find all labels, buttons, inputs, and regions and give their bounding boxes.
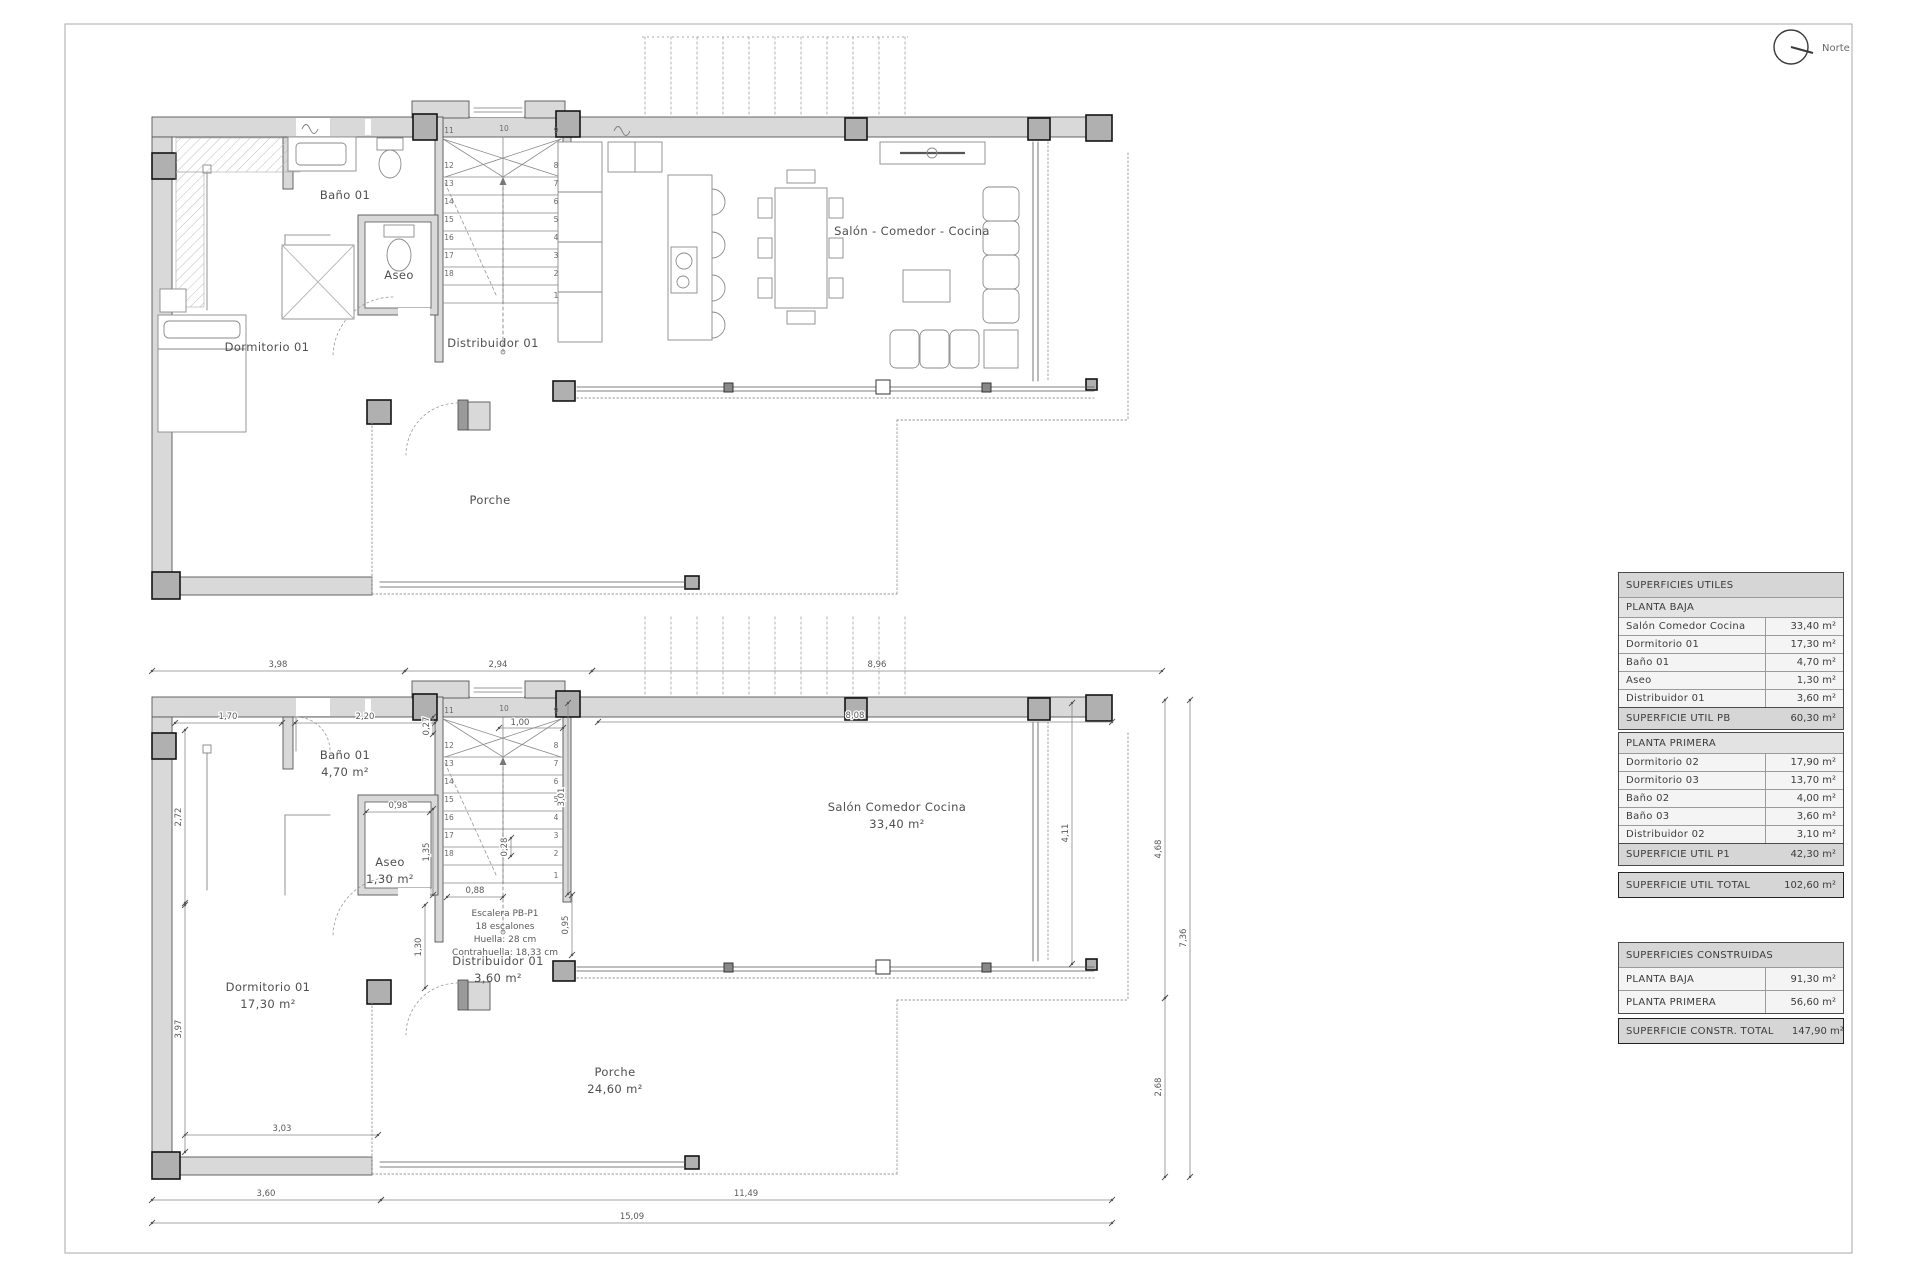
toilet-bowl xyxy=(387,239,411,271)
stair-step-number: 6 xyxy=(554,197,559,206)
sofa xyxy=(983,289,1019,323)
floor-plan-lower: 3,982,948,963,6011,4915,091,702,208,081,… xyxy=(149,660,1193,1226)
dimension-value: 3,03 xyxy=(273,1124,292,1134)
chair xyxy=(787,311,815,324)
table-row-value: 3,10 m² xyxy=(1765,826,1843,843)
stair-step-number: 5 xyxy=(554,215,559,224)
room-label-salon: Salón Comedor Cocina xyxy=(828,800,967,814)
stair-step-number: 9 xyxy=(554,706,559,715)
stair-step-number: 5 xyxy=(554,795,559,804)
table-row: Distribuidor 023,10 m² xyxy=(1619,825,1843,843)
stair-step-number: 12 xyxy=(444,741,454,750)
table-row: Baño 024,00 m² xyxy=(1619,789,1843,807)
table-row-label: Dormitorio 01 xyxy=(1619,639,1765,650)
dimension-lines: 3,982,948,963,6011,4915,091,702,208,081,… xyxy=(149,660,1193,1226)
room-label-salon: Salón - Comedor - Cocina xyxy=(834,224,990,238)
dimension-value: 3,01 xyxy=(557,788,567,807)
stair-step-number: 11 xyxy=(444,126,454,135)
table-row-label: Baño 01 xyxy=(1619,657,1765,668)
stair-step-number: 4 xyxy=(554,233,559,242)
dimension: 15,09 xyxy=(149,1212,1115,1226)
table-row-value: 17,30 m² xyxy=(1765,636,1843,653)
sofa xyxy=(890,330,919,368)
planta-primera-table: PLANTA PRIMERADormitorio 0217,90 m²Dormi… xyxy=(1618,732,1844,866)
dimension-value: 4,68 xyxy=(1154,840,1164,859)
table-row-label: PLANTA PRIMERA xyxy=(1619,997,1765,1008)
stair-step-number: 14 xyxy=(444,777,454,786)
dimension-value: 15,09 xyxy=(620,1212,644,1222)
dimension-value: 2,68 xyxy=(1154,1078,1164,1097)
table-row-label: Distribuidor 01 xyxy=(1619,693,1765,704)
stair-step-number: 1 xyxy=(554,291,559,300)
table-row-value: 3,60 m² xyxy=(1765,690,1843,707)
dimension-value: 0,88 xyxy=(466,886,485,896)
room-label-dormitorio: Dormitorio 01 xyxy=(226,980,311,994)
dimension-value: 1,35 xyxy=(422,843,432,862)
table-row-label: Baño 03 xyxy=(1619,811,1765,822)
table-row: PLANTA PRIMERA56,60 m² xyxy=(1619,990,1843,1013)
dining-table xyxy=(775,188,827,308)
stair-step-number: 4 xyxy=(554,813,559,822)
grand-total-label: SUPERFICIE ÚTIL TOTAL xyxy=(1619,880,1766,891)
dimension: 3,60 xyxy=(149,1189,384,1203)
section-header-label: PLANTA PRIMERA xyxy=(1619,738,1843,749)
stair-step-number: 16 xyxy=(444,813,454,822)
stair-step-number: 16 xyxy=(444,233,454,242)
stair-step-number: 10 xyxy=(499,704,509,713)
room-label-bano: Baño 01 xyxy=(320,188,370,202)
stair-step-number: 15 xyxy=(444,215,454,224)
nightstand xyxy=(160,289,186,312)
toilet xyxy=(384,225,414,237)
table-title: SUPERFICIES CONSTRUIDAS xyxy=(1619,943,1843,967)
chair xyxy=(758,198,772,218)
sofa xyxy=(983,255,1019,289)
dimension: 7,36 xyxy=(1179,697,1193,1180)
dimension: 2,68 xyxy=(1154,995,1168,1180)
room-label-dormitorio: Dormitorio 01 xyxy=(225,340,310,354)
dimension-value: 0,27 xyxy=(422,717,432,736)
chair xyxy=(829,198,843,218)
table-row: Dormitorio 0217,90 m² xyxy=(1619,753,1843,771)
dimension: 2,94 xyxy=(402,660,595,674)
stair-step-number: 1 xyxy=(554,871,559,880)
table-row: Distribuidor 013,60 m² xyxy=(1619,689,1843,707)
section-header: PLANTA BAJA xyxy=(1619,597,1843,617)
table-row-value: 13,70 m² xyxy=(1765,772,1843,789)
room-label-bano: Baño 01 xyxy=(320,748,370,762)
table-row-label: Aseo xyxy=(1619,675,1765,686)
stair-step-number: 13 xyxy=(444,759,454,768)
stair-step-number: 17 xyxy=(444,831,454,840)
table-row-value: 17,90 m² xyxy=(1765,754,1843,771)
table-row-value: 4,70 m² xyxy=(1765,654,1843,671)
table-row-value: 33,40 m² xyxy=(1765,618,1843,635)
stair-step-number: 15 xyxy=(444,795,454,804)
room-label-dormitorio-area: 17,30 m² xyxy=(240,997,296,1011)
dimension-value: 3,60 xyxy=(257,1189,276,1199)
dimension-value: 0,28 xyxy=(500,838,510,857)
chair xyxy=(787,170,815,183)
table-row-label: Baño 02 xyxy=(1619,793,1765,804)
dimension-value: 2,20 xyxy=(356,712,375,722)
table-row-label: PLANTA BAJA xyxy=(1619,974,1765,985)
stool xyxy=(712,189,725,215)
constr-total: SUPERFICIE CONSTR. TOTAL147,90 m² xyxy=(1619,1020,1851,1042)
dimension: 4,11 xyxy=(1061,700,1075,967)
table-row: Dormitorio 0117,30 m² xyxy=(1619,635,1843,653)
dimension: 11,49 xyxy=(378,1189,1115,1203)
dimension-value: 1,00 xyxy=(511,718,530,728)
stool xyxy=(712,232,725,258)
toilet-bowl xyxy=(379,150,401,178)
stair-step-number: 12 xyxy=(444,161,454,170)
section-header-label: PLANTA BAJA xyxy=(1619,602,1843,613)
stool xyxy=(712,312,725,338)
dimension-value: 8,96 xyxy=(868,660,887,670)
chair xyxy=(829,238,843,258)
lower-plan-labels: 123456789101112131415161718Baño 014,70 m… xyxy=(226,704,967,1096)
stair-step-number: 3 xyxy=(554,251,559,260)
stair-step-number: 8 xyxy=(554,161,559,170)
grand-total: SUPERFICIE ÚTIL TOTAL102,60 m² xyxy=(1619,874,1843,896)
stair-step-number: 8 xyxy=(554,741,559,750)
stair-step-number: 11 xyxy=(444,706,454,715)
table-row-label: Salón Comedor Cocina xyxy=(1619,621,1765,632)
table-row-label: Dormitorio 02 xyxy=(1619,757,1765,768)
dimension: 3,03 xyxy=(182,1124,381,1138)
stair-step-number: 7 xyxy=(554,759,559,768)
north-label: Norte xyxy=(1822,43,1850,54)
superficies-construidas-table: SUPERFICIES CONSTRUIDASPLANTA BAJA91,30 … xyxy=(1618,942,1844,1014)
dimension-value: 3,97 xyxy=(174,1020,184,1039)
dimension-value: 2,94 xyxy=(489,660,508,670)
floor-plan-upper: 123456789101112131415161718Baño 01AseoDo… xyxy=(158,37,1019,507)
room-label-aseo-area: 1,30 m² xyxy=(366,872,414,886)
table-row-label: Dormitorio 03 xyxy=(1619,775,1765,786)
superficie-constr-total: SUPERFICIE CONSTR. TOTAL147,90 m² xyxy=(1618,1018,1844,1044)
side-table xyxy=(984,330,1018,368)
stair-step-number: 2 xyxy=(554,269,559,278)
dimension-value: 4,11 xyxy=(1061,824,1071,843)
section-header: PLANTA PRIMERA xyxy=(1619,733,1843,753)
table-row-value: 4,00 m² xyxy=(1765,790,1843,807)
section-total-label: SUPERFICIE ÚTIL P1 xyxy=(1619,849,1766,860)
table-title-label: SUPERFICIES ÚTILES xyxy=(1619,580,1843,591)
section-total: SUPERFICIE ÚTIL P142,30 m² xyxy=(1619,843,1843,865)
stair-step-number: 9 xyxy=(554,126,559,135)
dimension: 0,27 xyxy=(422,714,436,737)
table-row-value: 3,60 m² xyxy=(1765,808,1843,825)
stair-step-number: 13 xyxy=(444,179,454,188)
stair-step-number: 14 xyxy=(444,197,454,206)
table-row: Baño 033,60 m² xyxy=(1619,807,1843,825)
table-row: Baño 014,70 m² xyxy=(1619,653,1843,671)
room-label-porche-area: 24,60 m² xyxy=(587,1082,643,1096)
room-label-distribuidor-area: 3,60 m² xyxy=(474,971,522,985)
dimension: 3,98 xyxy=(149,660,408,674)
chair xyxy=(829,278,843,298)
superficies-utiles-table: SUPERFICIES ÚTILESPLANTA BAJASalón Comed… xyxy=(1618,572,1844,730)
room-label-porche: Porche xyxy=(469,493,510,507)
section-total-value: 42,30 m² xyxy=(1766,844,1843,865)
table-title-label: SUPERFICIES CONSTRUIDAS xyxy=(1619,950,1843,961)
stair-step-number: 17 xyxy=(444,251,454,260)
chair xyxy=(758,278,772,298)
stair-step-number: 3 xyxy=(554,831,559,840)
table-title: SUPERFICIES ÚTILES xyxy=(1619,573,1843,597)
table-row-value: 91,30 m² xyxy=(1765,968,1843,990)
dimension: 4,68 xyxy=(1154,697,1168,1001)
section-total-value: 60,30 m² xyxy=(1766,708,1843,729)
sofa xyxy=(983,187,1019,221)
north-compass: Norte xyxy=(1774,30,1850,64)
room-label-aseo: Aseo xyxy=(384,268,414,282)
coffee-table xyxy=(903,270,950,302)
room-label-distribuidor: Distribuidor 01 xyxy=(447,336,539,350)
table-row-value: 1,30 m² xyxy=(1765,672,1843,689)
sofa xyxy=(950,330,979,368)
constr-total-label: SUPERFICIE CONSTR. TOTAL xyxy=(1619,1026,1774,1037)
constr-total-value: 147,90 m² xyxy=(1774,1020,1851,1042)
stair-note-line: Escalera PB-P1 xyxy=(472,909,539,919)
table-row: Dormitorio 0313,70 m² xyxy=(1619,771,1843,789)
sofa xyxy=(920,330,949,368)
room-label-bano-area: 4,70 m² xyxy=(321,765,369,779)
dimension-value: 8,08 xyxy=(846,711,865,721)
table-row: Salón Comedor Cocina33,40 m² xyxy=(1619,617,1843,635)
wardrobe-hatch xyxy=(176,138,300,307)
table-row-label: Distribuidor 02 xyxy=(1619,829,1765,840)
table-row: PLANTA BAJA91,30 m² xyxy=(1619,967,1843,990)
chair xyxy=(758,238,772,258)
stair-step-number: 6 xyxy=(554,777,559,786)
superficie-util-total: SUPERFICIE ÚTIL TOTAL102,60 m² xyxy=(1618,872,1844,898)
architectural-sheet: Norte xyxy=(0,0,1920,1280)
toilet xyxy=(377,138,403,150)
dimension: 1,30 xyxy=(414,902,428,991)
dimension-value: 0,95 xyxy=(561,916,571,935)
stair-note-line: Contrahuella: 18,33 cm xyxy=(452,948,558,958)
room-label-aseo: Aseo xyxy=(375,855,405,869)
dimension-value: 1,70 xyxy=(219,712,238,722)
section-total: SUPERFICIE ÚTIL PB60,30 m² xyxy=(1619,707,1843,729)
table-row-value: 56,60 m² xyxy=(1765,991,1843,1013)
dimension-value: 1,30 xyxy=(414,938,424,957)
stair-note-line: Huella: 28 cm xyxy=(474,935,536,945)
stair-step-number: 18 xyxy=(444,849,454,858)
dimension-value: 2,72 xyxy=(174,808,184,827)
dimension: 0,88 xyxy=(444,886,506,900)
table-row: Aseo1,30 m² xyxy=(1619,671,1843,689)
dimension: 3,97 xyxy=(174,902,188,1155)
dimension-value: 11,49 xyxy=(734,1189,758,1199)
dimension-value: 0,98 xyxy=(389,801,408,811)
room-label-salon-area: 33,40 m² xyxy=(869,817,925,831)
stair-step-number: 7 xyxy=(554,179,559,188)
stair-step-number: 18 xyxy=(444,269,454,278)
stool xyxy=(712,275,725,301)
stair-step-number: 10 xyxy=(499,124,509,133)
stair-note-line: 18 escalones xyxy=(476,922,535,932)
grand-total-value: 102,60 m² xyxy=(1766,874,1843,896)
bed-pillow xyxy=(164,321,240,338)
sheet-border xyxy=(65,24,1852,1253)
dimension-value: 3,98 xyxy=(269,660,288,670)
room-label-porche: Porche xyxy=(594,1065,635,1079)
section-total-label: SUPERFICIE ÚTIL PB xyxy=(1619,713,1766,724)
bath-sink-basin xyxy=(296,143,346,165)
dimension-value: 7,36 xyxy=(1179,929,1189,948)
dimension: 8,96 xyxy=(589,660,1165,674)
stair-step-number: 2 xyxy=(554,849,559,858)
